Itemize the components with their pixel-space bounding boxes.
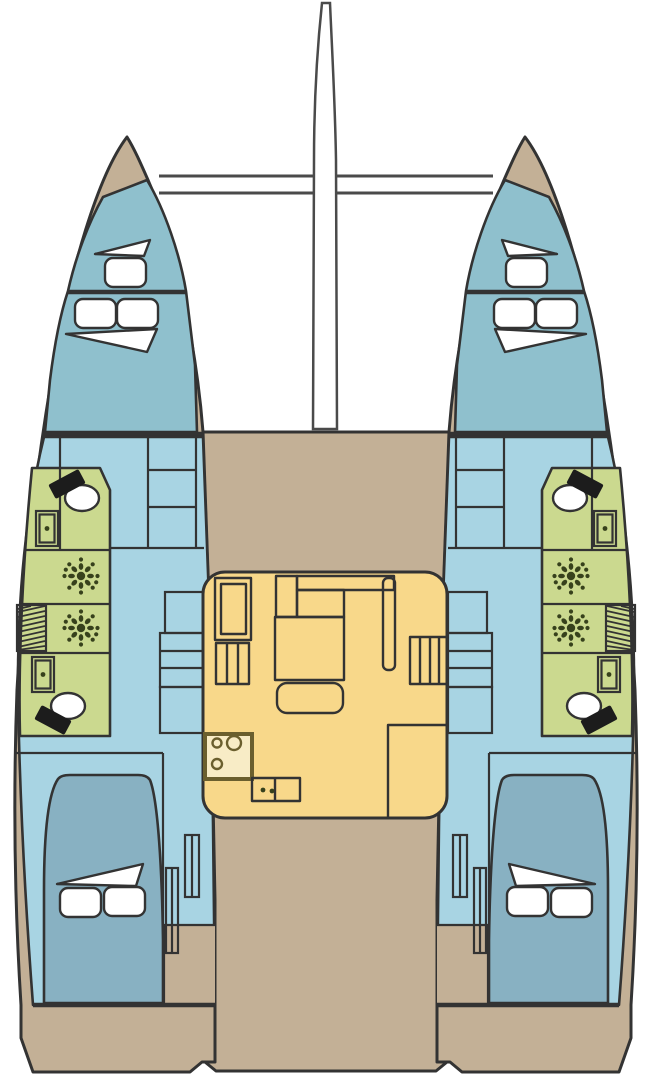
- left-forepeak-berth-pillow: [105, 258, 146, 287]
- left-aft-berth-pillow-2: [104, 887, 145, 916]
- right-bow-cabin-pillow-2: [494, 299, 535, 328]
- salon: [203, 572, 447, 818]
- mast-and-boom: [313, 3, 337, 429]
- galley-sink-knob-2: [270, 789, 275, 794]
- right-bow-cabin-pillow-1: [536, 299, 577, 328]
- left-bow-cabin-pillow-2: [117, 299, 158, 328]
- right-forepeak-berth-pillow: [506, 258, 547, 287]
- floor-plan-canvas: [0, 0, 652, 1080]
- right-aft-berth: [489, 775, 608, 1003]
- left-aft-berth: [44, 775, 163, 1003]
- salon-cabin: [203, 572, 447, 818]
- right-aft-berth-pillow-2: [507, 887, 548, 916]
- left-hull: [15, 137, 215, 1072]
- catamaran-floor-plan: [0, 0, 652, 1080]
- left-bow-cabin-pillow-1: [75, 299, 116, 328]
- right-aft-berth-pillow-1: [551, 888, 592, 917]
- left-aft-berth-pillow-1: [60, 888, 101, 917]
- galley-sink-knob-1: [261, 788, 266, 793]
- right-hull: [437, 137, 637, 1072]
